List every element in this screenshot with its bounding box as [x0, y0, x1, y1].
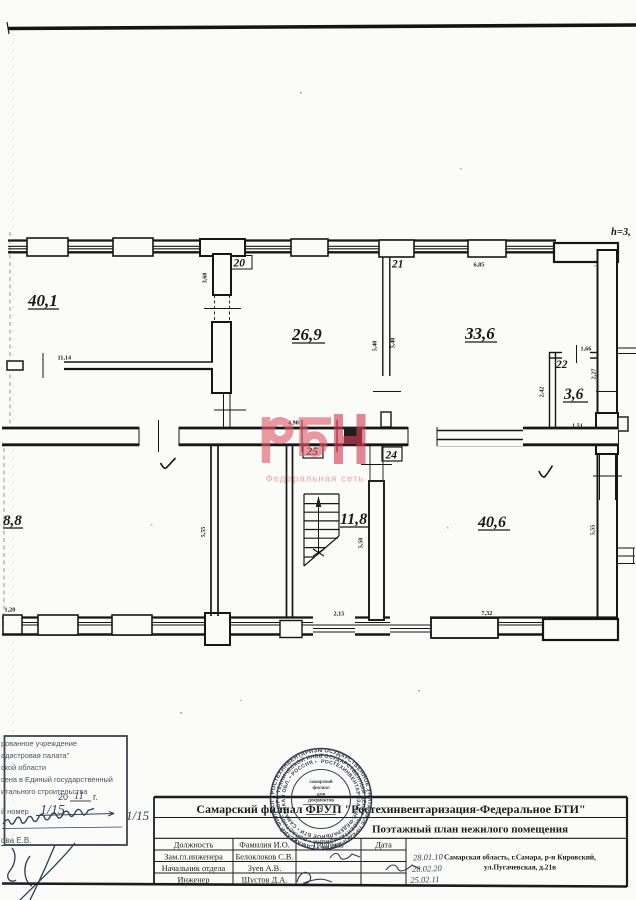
svg-text:й номер: й номер	[1, 807, 29, 816]
svg-text:документов: документов	[308, 798, 334, 803]
svg-text:Шустов Д.А.: Шустов Д.А.	[242, 876, 288, 885]
svg-text:6,85: 6,85	[474, 262, 485, 269]
svg-text:рованное учреждение: рованное учреждение	[1, 739, 77, 748]
svg-text:11,14: 11,14	[58, 355, 72, 362]
svg-text:2,42: 2,42	[539, 387, 546, 398]
svg-text:Поэтажный план нежилого помеще: Поэтажный план нежилого помещения	[372, 824, 568, 836]
svg-text:3,60: 3,60	[202, 273, 209, 284]
svg-text:40,1: 40,1	[27, 291, 58, 310]
svg-text:11: 11	[74, 791, 84, 802]
svg-text:1/15: 1/15	[126, 808, 150, 823]
svg-text:5,55: 5,55	[200, 527, 207, 538]
svg-text:7,32: 7,32	[482, 610, 493, 617]
svg-text:11,8: 11,8	[340, 511, 367, 528]
svg-text:26,9: 26,9	[291, 325, 322, 344]
svg-text:самарский: самарский	[309, 779, 333, 784]
svg-text:28.01.10: 28.01.10	[413, 851, 444, 862]
svg-text:5,50: 5,50	[358, 538, 365, 549]
svg-text:20: 20	[233, 258, 246, 270]
svg-text:20: 20	[58, 792, 68, 802]
svg-text:h=3,: h=3,	[611, 227, 631, 238]
svg-text:28.02.20: 28.02.20	[412, 863, 443, 874]
svg-text:40,6: 40,6	[477, 514, 506, 531]
svg-text:1,66: 1,66	[581, 346, 592, 353]
svg-text:Фамилия И.О.: Фамилия И.О.	[239, 841, 290, 850]
svg-text:г.: г.	[93, 792, 98, 802]
svg-text:Белоклоков С.В.: Белоклоков С.В.	[235, 853, 293, 862]
svg-text:8,8: 8,8	[3, 513, 22, 529]
svg-text:22: 22	[555, 359, 568, 371]
svg-text:Самарская область, г.Самара, р: Самарская область, г.Самара, р-н Кировск…	[444, 853, 596, 862]
svg-text:3,6: 3,6	[563, 386, 584, 403]
svg-text:2,27: 2,27	[591, 369, 598, 380]
svg-text:ул.Пугачевская, д.21в: ул.Пугачевская, д.21в	[484, 863, 556, 872]
svg-text:5,40: 5,40	[372, 341, 379, 352]
svg-text:2,15: 2,15	[334, 611, 345, 618]
svg-text:24: 24	[385, 450, 398, 462]
svg-text:Должность: Должность	[174, 841, 214, 850]
svg-text:25.02.11: 25.02.11	[410, 874, 439, 885]
svg-text:Зам.гл.инженера: Зам.гл.инженера	[164, 853, 223, 862]
svg-text:адастровая палата": адастровая палата"	[1, 751, 70, 760]
svg-text:21: 21	[391, 259, 404, 271]
svg-text:з: з	[319, 805, 323, 814]
svg-text:Зуев А.В.: Зуев А.В.	[248, 864, 282, 873]
svg-text:ова Е.В.: ова Е.В.	[1, 836, 31, 845]
svg-text:1,51: 1,51	[572, 423, 583, 430]
svg-text:ской области: ской области	[1, 763, 46, 772]
svg-text:сена в Единый государственный: сена в Единый государственный	[1, 775, 113, 784]
svg-text:5,55: 5,55	[590, 525, 597, 536]
svg-text:Начальник отдела: Начальник отдела	[162, 864, 226, 873]
svg-text:Федеральная сеть: Федеральная сеть	[265, 474, 364, 485]
svg-text:филиал: филиал	[312, 785, 329, 790]
svg-text:Инженер: Инженер	[177, 876, 209, 885]
svg-text:Дата: Дата	[375, 841, 392, 850]
svg-text:1,20: 1,20	[5, 607, 16, 614]
svg-text:33,6: 33,6	[464, 324, 495, 343]
svg-text:Самарский филиал ФГУП "Ростехи: Самарский филиал ФГУП "Ростехинвентариза…	[196, 802, 585, 816]
svg-text:5,40: 5,40	[390, 338, 397, 349]
svg-text:для: для	[317, 792, 326, 797]
